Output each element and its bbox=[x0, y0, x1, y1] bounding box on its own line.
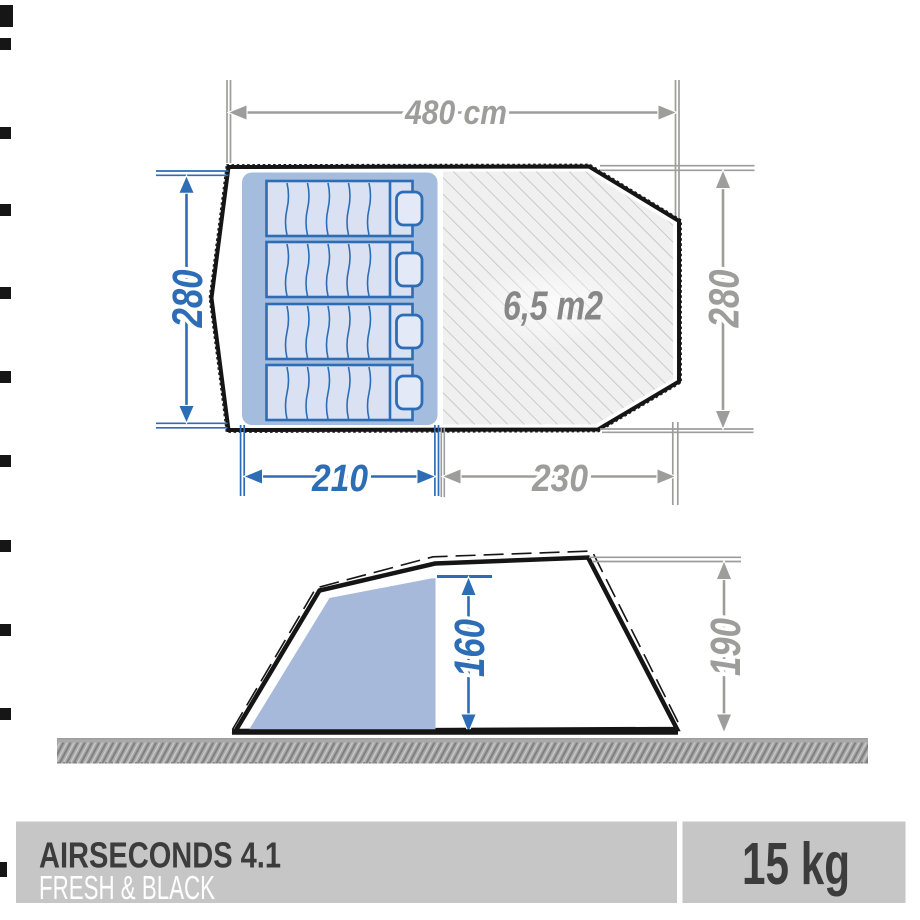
svg-text:480 cm: 480 cm bbox=[404, 94, 507, 132]
svg-text:190: 190 bbox=[702, 618, 750, 676]
svg-text:210: 210 bbox=[311, 458, 368, 500]
svg-text:160: 160 bbox=[446, 619, 494, 677]
svg-text:280: 280 bbox=[164, 269, 212, 328]
svg-text:280: 280 bbox=[701, 269, 749, 328]
svg-text:FRESH & BLACK: FRESH & BLACK bbox=[39, 869, 215, 906]
svg-text:6,5 m2: 6,5 m2 bbox=[503, 283, 603, 329]
svg-text:230: 230 bbox=[531, 458, 588, 500]
svg-text:15 kg: 15 kg bbox=[742, 831, 850, 897]
